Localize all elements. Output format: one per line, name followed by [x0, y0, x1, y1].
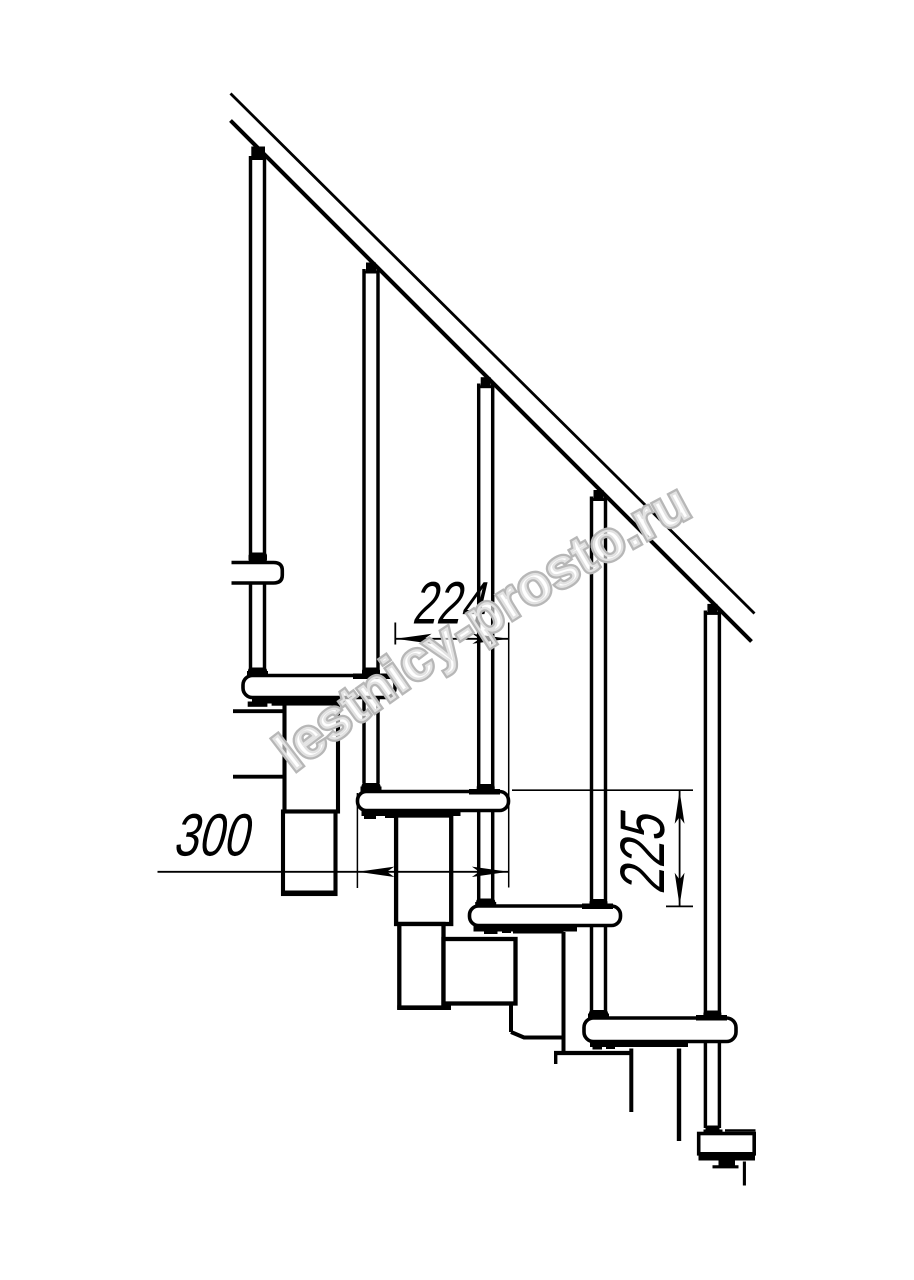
svg-text:225: 225	[607, 803, 677, 898]
svg-text:300: 300	[169, 802, 259, 869]
